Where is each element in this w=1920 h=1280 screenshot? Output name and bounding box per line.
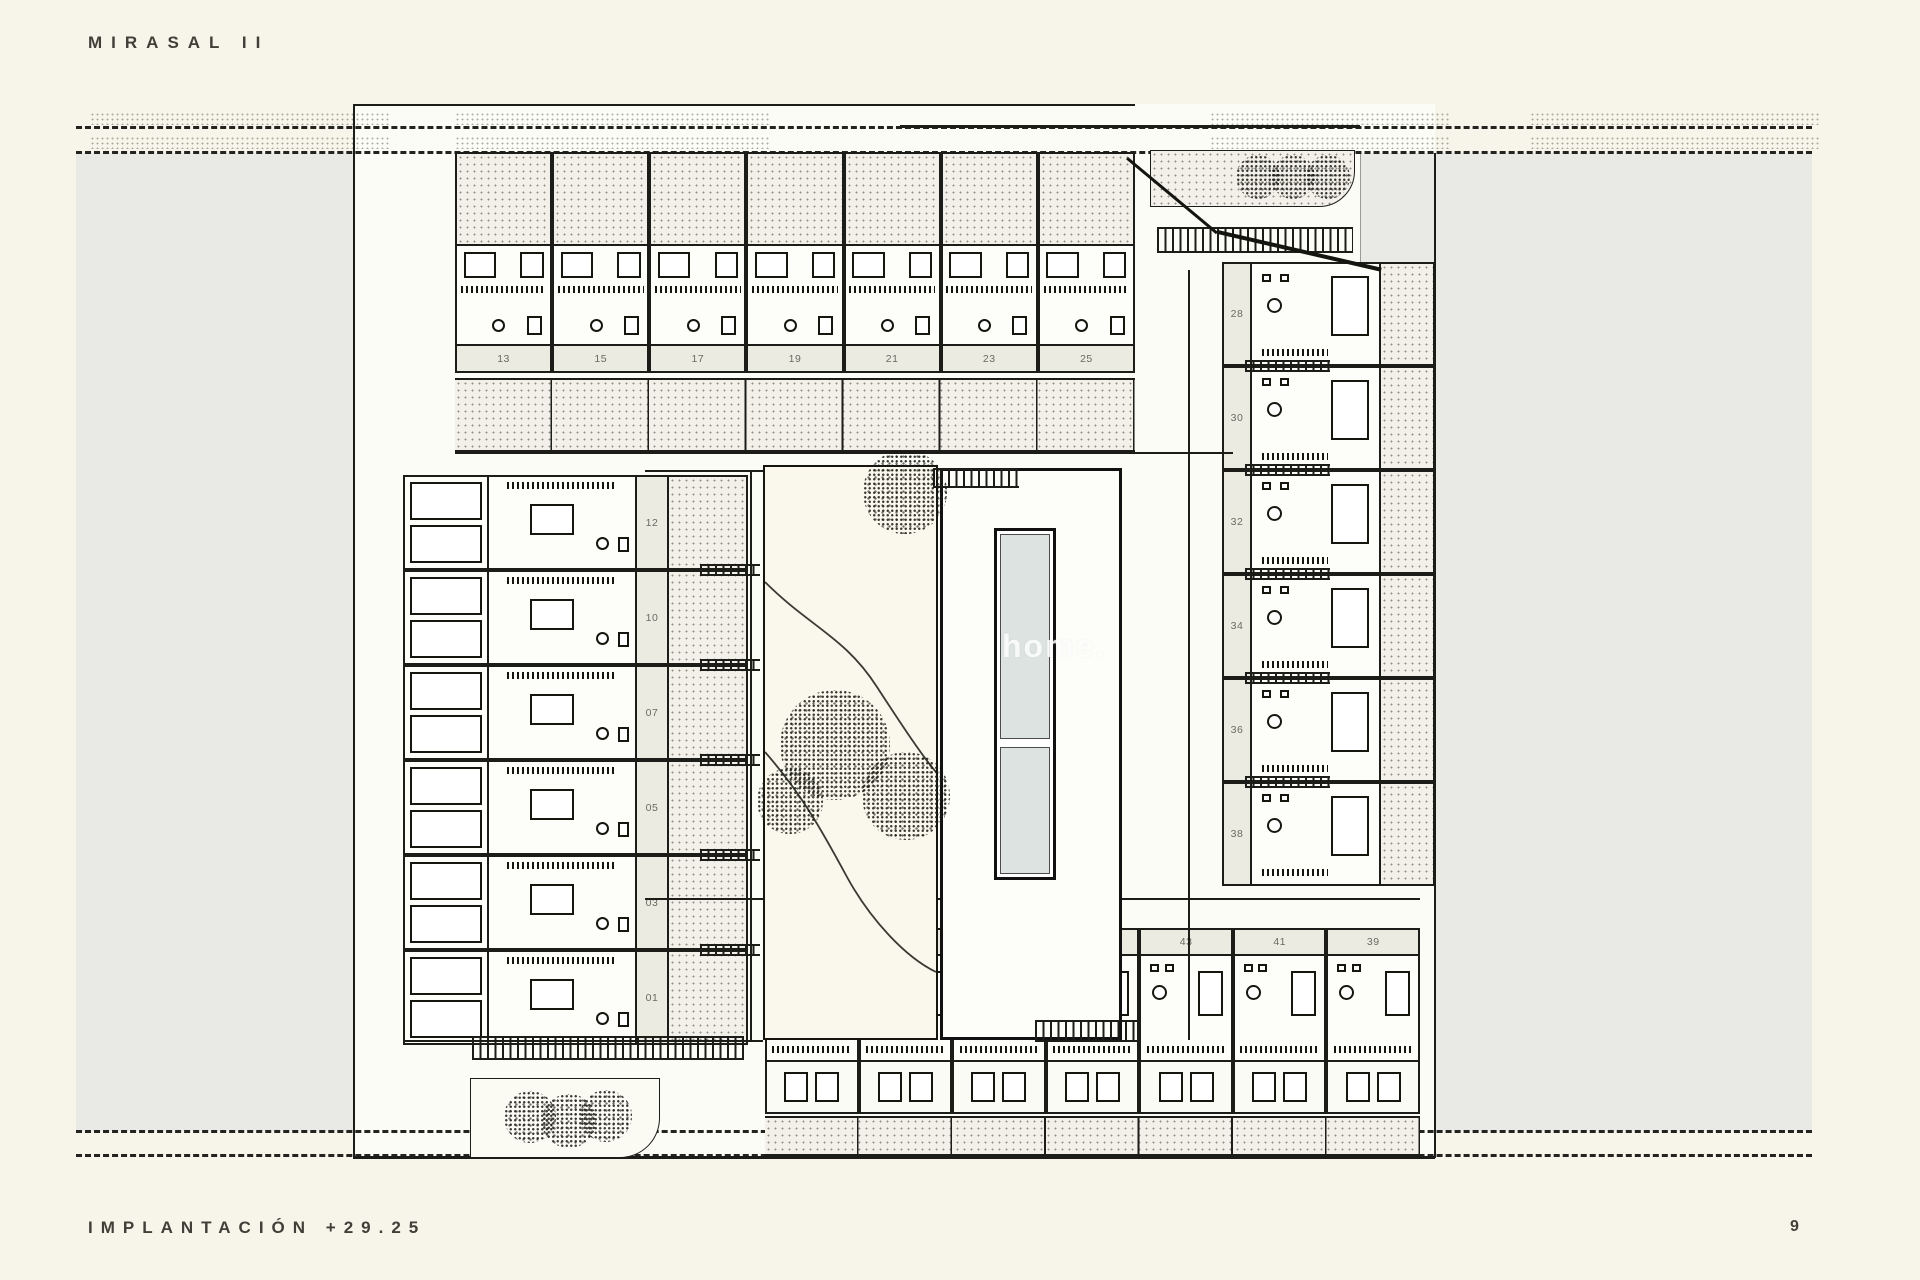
floorplan-table: [1267, 818, 1282, 833]
vegetation-hatch: [90, 112, 390, 125]
unit-number: 25: [1080, 353, 1093, 365]
floorplan-table: [596, 917, 609, 930]
floorplan-fixture: [1280, 586, 1289, 594]
unit-number: 01: [646, 992, 659, 1004]
floorplan-fixture: [1262, 482, 1271, 490]
unit-number-cell: 23: [943, 344, 1036, 371]
bedroom: [410, 905, 482, 943]
pool-water-small: [1000, 747, 1050, 874]
unit-floorplan: [1141, 956, 1231, 1060]
unit-row-top: 13151719212325: [455, 152, 1135, 373]
unit-32: 32: [1222, 470, 1435, 574]
unit-21: 21: [844, 152, 941, 373]
bedroom: [410, 1000, 482, 1038]
floorplan-fixture: [1165, 964, 1174, 972]
unit-patio: [1040, 154, 1133, 246]
plan-top-wall: [900, 125, 1360, 128]
unit-number-cell: 34: [1224, 576, 1252, 676]
unit-number-cell: 25: [1040, 344, 1133, 371]
floorplan-room: [852, 252, 885, 278]
floorplan-stair: [507, 957, 618, 964]
unit-number: 32: [1231, 516, 1244, 528]
floorplan-fixture: [1258, 964, 1267, 972]
floorplan-fixture: [1280, 794, 1289, 802]
unit-storage: [861, 1060, 951, 1112]
floorplan-stair: [1240, 1046, 1319, 1053]
vegetation-hatch: [455, 112, 770, 125]
sheet-title: MIRASAL II: [88, 33, 269, 53]
floorplan-stair: [1334, 1046, 1413, 1053]
unit-number: 21: [886, 353, 899, 365]
floorplan-stair: [772, 1046, 851, 1053]
bedroom: [410, 767, 482, 805]
floorplan-fixture: [1262, 274, 1271, 282]
unit-floorplan: [1252, 368, 1381, 468]
drawing-sheet: MIRASAL II IMPLANTACIÓN +29.25 9 1315171…: [0, 0, 1920, 1280]
stair-flight: [700, 659, 760, 671]
floorplan-stair: [507, 862, 618, 869]
unit-15: 15: [552, 152, 649, 373]
floorplan-stair: [960, 1046, 1039, 1053]
unit-28: 28: [1222, 262, 1435, 366]
floorplan-table: [596, 1012, 609, 1025]
floorplan-stair: [1147, 1046, 1226, 1053]
unit-39: 39: [1326, 928, 1420, 1114]
unit-patio: [846, 154, 939, 246]
floorplan-room: [949, 252, 982, 278]
unit-number: 39: [1367, 936, 1380, 948]
storage-box: [1252, 1072, 1276, 1102]
floorplan-fixture: [1280, 378, 1289, 386]
unit-floorplan: [1252, 472, 1381, 572]
unit-floorplan: [846, 246, 939, 344]
bush: [1306, 155, 1350, 199]
storage-box: [971, 1072, 995, 1102]
unit-floorplan: [489, 477, 637, 568]
floorplan-stair: [461, 286, 547, 293]
unit-patio: [669, 477, 746, 568]
unit-number: 43: [1180, 936, 1193, 948]
storage-box: [1190, 1072, 1214, 1102]
unit-patio: [669, 857, 746, 948]
bedroom: [410, 525, 482, 563]
floorplan-fixture: [1280, 274, 1289, 282]
unit-number-cell: 17: [651, 344, 744, 371]
unit-bedrooms: [405, 477, 489, 568]
unit-bedrooms: [405, 762, 489, 853]
floorplan-fixture: [1012, 316, 1027, 335]
floorplan-room: [715, 252, 738, 278]
floorplan-room: [520, 252, 543, 278]
floorplan-table: [596, 822, 609, 835]
floorplan-stair: [1262, 453, 1328, 460]
unit-patio: [943, 154, 1036, 246]
tree: [757, 768, 823, 834]
floorplan-table: [1267, 610, 1282, 625]
unit-number-cell: 05: [637, 762, 669, 853]
vegetation-hatch: [1210, 112, 1450, 125]
unit-patio: [554, 154, 647, 246]
unit-storage: [1141, 1060, 1231, 1112]
unit-19: 19: [746, 152, 843, 373]
floorplan-stair: [507, 767, 618, 774]
vegetation-hatch: [1530, 136, 1820, 149]
floorplan-fixture: [618, 917, 629, 932]
floorplan-room: [1046, 252, 1079, 278]
unit-number: 28: [1231, 308, 1244, 320]
unit-patio: [669, 667, 746, 758]
floorplan-stair: [1262, 765, 1328, 772]
floorplan-stair: [507, 577, 618, 584]
storage-box: [1346, 1072, 1370, 1102]
floorplan-fixture: [618, 537, 629, 552]
unit-patio: [669, 572, 746, 663]
unit-patio: [651, 154, 744, 246]
unit-number-cell: 19: [748, 344, 841, 371]
storage-box: [784, 1072, 808, 1102]
floorplan-table: [978, 319, 991, 332]
pergola-southwest: [472, 1036, 744, 1060]
floorplan-room: [1385, 971, 1410, 1017]
unit-number: 13: [497, 353, 510, 365]
unit-number: 34: [1231, 620, 1244, 632]
unit-05: 05: [403, 760, 748, 855]
bedroom: [410, 810, 482, 848]
tree: [862, 752, 950, 840]
unit-bedrooms: [405, 857, 489, 948]
unit-number-cell: 10: [637, 572, 669, 663]
floorplan-room: [530, 504, 574, 535]
unit-patio: [1381, 368, 1433, 468]
floorplan-stair: [558, 286, 644, 293]
sheet-footer-label: IMPLANTACIÓN +29.25: [88, 1218, 426, 1238]
floorplan-fixture: [1337, 964, 1346, 972]
bedroom: [410, 672, 482, 710]
tree: [863, 450, 947, 534]
driveway-strip-bottom: [765, 1116, 1420, 1156]
vegetation-hatch: [1210, 136, 1450, 149]
unit-number: 30: [1231, 412, 1244, 424]
unit-25: 25: [1038, 152, 1135, 373]
unit-storage: [954, 1060, 1044, 1112]
floorplan-stair: [1262, 349, 1328, 356]
unit-patio: [1381, 576, 1433, 676]
bedroom: [410, 482, 482, 520]
unit-floorplan: [1252, 264, 1381, 364]
unit-floorplan: [489, 952, 637, 1043]
floorplan-room: [530, 599, 574, 630]
stair-flight: [700, 754, 760, 766]
unit-floorplan: [1235, 956, 1325, 1060]
unit-bedrooms: [405, 667, 489, 758]
floorplan-fixture: [1244, 964, 1253, 972]
floorplan-stair: [849, 286, 935, 293]
floorplan-room: [1331, 588, 1369, 648]
floorplan-fixture: [1262, 378, 1271, 386]
storage-box: [1283, 1072, 1307, 1102]
parcel-right-top: [1360, 153, 1436, 263]
floorplan-table: [1267, 298, 1282, 313]
floorplan-table: [596, 632, 609, 645]
storage-box: [1065, 1072, 1089, 1102]
unit-floorplan: [457, 246, 550, 344]
floorplan-fixture: [527, 316, 542, 335]
floorplan-fixture: [1150, 964, 1159, 972]
floorplan-room: [1006, 252, 1029, 278]
unit-storage: [1235, 1060, 1325, 1112]
storage-box: [1002, 1072, 1026, 1102]
unit-floorplan: [489, 857, 637, 948]
unit-number: 17: [692, 353, 705, 365]
floorplan-fixture: [618, 727, 629, 742]
bedroom: [410, 715, 482, 753]
floorplan-room: [530, 694, 574, 725]
sidewalk-line: [353, 104, 1135, 106]
bedroom: [410, 957, 482, 995]
floorplan-stair: [1053, 1046, 1132, 1053]
unit-patio: [1381, 680, 1433, 780]
unit-number: 05: [646, 802, 659, 814]
floorplan-table: [1152, 985, 1167, 1000]
unit-17: 17: [649, 152, 746, 373]
floorplan-table: [596, 537, 609, 550]
photo-watermark: home.: [1002, 628, 1106, 665]
floorplan-room: [1331, 380, 1369, 440]
floorplan-fixture: [618, 822, 629, 837]
unit-patio: [669, 952, 746, 1043]
floorplan-stair: [946, 286, 1032, 293]
unit-patio: [748, 154, 841, 246]
floorplan-fixture: [624, 316, 639, 335]
floorplan-room: [530, 789, 574, 820]
vegetation-hatch: [455, 136, 770, 149]
floorplan-fixture: [915, 316, 930, 335]
floorplan-fixture: [618, 632, 629, 647]
floorplan-stair: [655, 286, 741, 293]
floorplan-room: [1331, 796, 1369, 856]
stair-flight: [700, 564, 760, 576]
floorplan-table: [590, 319, 603, 332]
stair-flight: [1245, 464, 1330, 476]
stair-flight: [1245, 672, 1330, 684]
unit-number-cell: 32: [1224, 472, 1252, 572]
unit-storage: [767, 1060, 857, 1112]
unit-floorplan: [1040, 246, 1133, 344]
floorplan-table: [881, 319, 894, 332]
storage-box: [1159, 1072, 1183, 1102]
page-number: 9: [1790, 1218, 1799, 1236]
unit-number-cell: 36: [1224, 680, 1252, 780]
floorplan-room: [1103, 252, 1126, 278]
floorplan-fixture: [1262, 690, 1271, 698]
unit-floorplan: [748, 246, 841, 344]
unit-number: 36: [1231, 724, 1244, 736]
floorplan-room: [755, 252, 788, 278]
unit-number: 10: [646, 612, 659, 624]
floorplan-table: [596, 727, 609, 740]
floorplan-stair: [752, 286, 838, 293]
unit-number-cell: 03: [637, 857, 669, 948]
storage-box: [1096, 1072, 1120, 1102]
unit-number: 15: [594, 353, 607, 365]
floorplan-room: [1198, 971, 1223, 1017]
floorplan-table: [687, 319, 700, 332]
unit-number: 41: [1273, 936, 1286, 948]
floorplan-fixture: [1280, 690, 1289, 698]
unit-41: 41: [1233, 928, 1327, 1114]
unit-number: 23: [983, 353, 996, 365]
floorplan-room: [1291, 971, 1316, 1017]
floorplan-room: [658, 252, 691, 278]
unit-number: 12: [646, 517, 659, 529]
unit-floorplan: [1252, 784, 1381, 884]
floorplan-fixture: [1262, 586, 1271, 594]
stair-flight: [1245, 568, 1330, 580]
floorplan-room: [530, 979, 574, 1010]
unit-number: 38: [1231, 828, 1244, 840]
storage-box: [815, 1072, 839, 1102]
floorplan-fixture: [1352, 964, 1361, 972]
unit-floorplan: [489, 572, 637, 663]
vegetation-hatch: [90, 136, 390, 149]
floorplan-fixture: [818, 316, 833, 335]
unit-storage: [1048, 1060, 1138, 1112]
unit-floorplan: [651, 246, 744, 344]
floorplan-fixture: [1262, 794, 1271, 802]
unit-bedrooms: [405, 572, 489, 663]
floorplan-room: [464, 252, 497, 278]
unit-patio: [1381, 784, 1433, 884]
unit-bedrooms: [405, 952, 489, 1043]
bedroom: [410, 577, 482, 615]
unit-patio: [457, 154, 550, 246]
storage-box: [878, 1072, 902, 1102]
unit-number-cell: 01: [637, 952, 669, 1043]
floorplan-room: [1331, 276, 1369, 336]
unit-patio: [669, 762, 746, 853]
floorplan-table: [1075, 319, 1088, 332]
unit-number-cell: 12: [637, 477, 669, 568]
floorplan-fixture: [721, 316, 736, 335]
stair-flight: [1245, 360, 1330, 372]
storage-box: [909, 1072, 933, 1102]
floorplan-table: [1267, 402, 1282, 417]
floorplan-fixture: [1110, 316, 1125, 335]
unit-38: 38: [1222, 782, 1435, 886]
unit-number-cell: 28: [1224, 264, 1252, 364]
floorplan-stair: [507, 482, 618, 489]
stair-flight: [700, 849, 760, 861]
unit-number-cell: 13: [457, 344, 550, 371]
floorplan-stair: [1262, 661, 1328, 668]
stair-flight: [1245, 776, 1330, 788]
street-line-north: [455, 452, 1233, 454]
unit-number-cell: 07: [637, 667, 669, 758]
floorplan-table: [1339, 985, 1354, 1000]
parcel-left: [76, 153, 353, 1131]
floorplan-room: [909, 252, 932, 278]
unit-07: 07: [403, 665, 748, 760]
unit-patio: [1381, 264, 1433, 364]
unit-43: 43: [1139, 928, 1233, 1114]
floorplan-stair: [1262, 869, 1328, 876]
floorplan-room: [530, 884, 574, 915]
unit-number-cell: 39: [1328, 930, 1418, 956]
unit-01: 01: [403, 950, 748, 1045]
unit-03: 03: [403, 855, 748, 950]
parcel-right: [1435, 153, 1812, 1131]
unit-36: 36: [1222, 678, 1435, 782]
unit-floorplan: [554, 246, 647, 344]
floorplan-stair: [1044, 286, 1130, 293]
plan-left-edge: [353, 104, 355, 1158]
storage-box: [1377, 1072, 1401, 1102]
floorplan-table: [1246, 985, 1261, 1000]
swimming-pool: [994, 528, 1056, 880]
floorplan-stair: [507, 672, 618, 679]
unit-number-cell: 38: [1224, 784, 1252, 884]
floorplan-room: [617, 252, 640, 278]
driveway-strip-top: [455, 378, 1135, 452]
unit-number-cell: 41: [1235, 930, 1325, 956]
unit-patio: [1381, 472, 1433, 572]
floorplan-room: [812, 252, 835, 278]
bush: [580, 1090, 632, 1142]
floorplan-stair: [1262, 557, 1328, 564]
floorplan-stair: [866, 1046, 945, 1053]
floorplan-fixture: [618, 1012, 629, 1027]
unit-number-cell: 15: [554, 344, 647, 371]
unit-storage: [1328, 1060, 1418, 1112]
unit-number: 19: [789, 353, 802, 365]
vegetation-hatch: [1530, 112, 1820, 125]
unit-number-cell: 43: [1141, 930, 1231, 956]
bedroom: [410, 862, 482, 900]
unit-floorplan: [1328, 956, 1418, 1060]
unit-23: 23: [941, 152, 1038, 373]
floorplan-room: [1331, 484, 1369, 544]
unit-column-left: 121007050301: [403, 475, 748, 1045]
unit-number-cell: 21: [846, 344, 939, 371]
unit-floorplan: [1252, 680, 1381, 780]
street-line-east: [1188, 270, 1190, 1040]
unit-number: 07: [646, 707, 659, 719]
unit-floorplan: [489, 762, 637, 853]
unit-floorplan: [943, 246, 1036, 344]
floorplan-room: [561, 252, 594, 278]
floorplan-table: [784, 319, 797, 332]
unit-floorplan: [1252, 576, 1381, 676]
floorplan-room: [1331, 692, 1369, 752]
street-line-north-2: [645, 470, 763, 472]
stair-flight: [700, 944, 760, 956]
unit-13: 13: [455, 152, 552, 373]
floorplan-table: [1267, 506, 1282, 521]
floorplan-table: [492, 319, 505, 332]
unit-12: 12: [403, 475, 748, 570]
unit-34: 34: [1222, 574, 1435, 678]
unit-10: 10: [403, 570, 748, 665]
deck-grate-south: [1035, 1020, 1141, 1042]
unit-30: 30: [1222, 366, 1435, 470]
bedroom: [410, 620, 482, 658]
unit-floorplan: [489, 667, 637, 758]
floorplan-fixture: [1280, 482, 1289, 490]
floorplan-table: [1267, 714, 1282, 729]
